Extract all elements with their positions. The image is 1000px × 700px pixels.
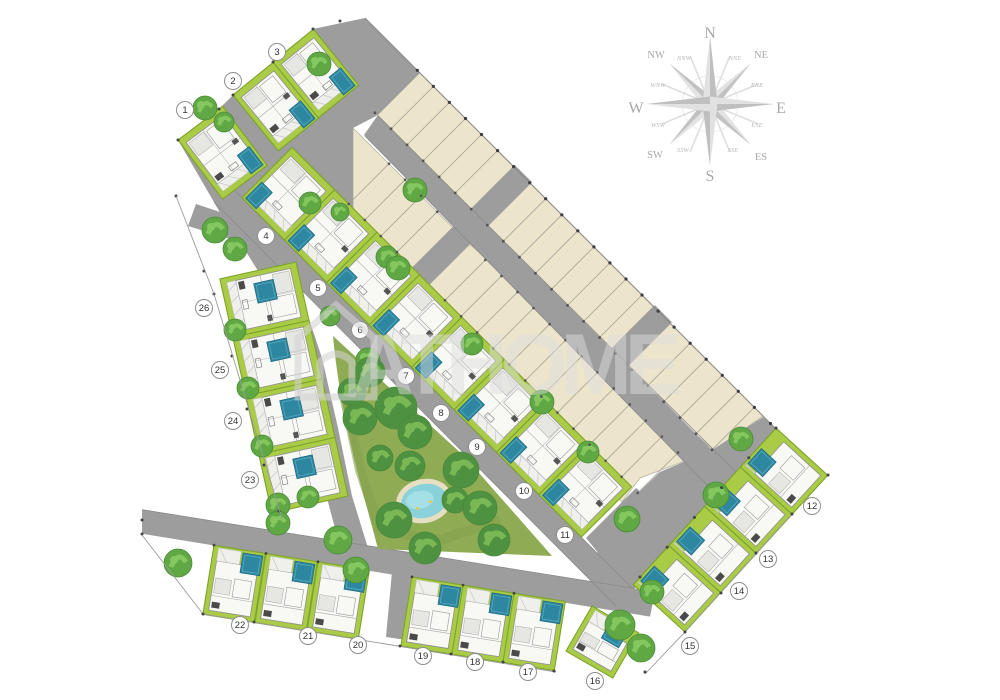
svg-text:S: S — [706, 168, 715, 185]
svg-text:14: 14 — [734, 586, 745, 597]
svg-text:N: N — [704, 25, 716, 42]
svg-text:23: 23 — [245, 475, 256, 486]
svg-text:SW: SW — [647, 150, 663, 161]
svg-text:9: 9 — [474, 442, 479, 453]
svg-text:10: 10 — [519, 486, 530, 497]
svg-text:15: 15 — [685, 641, 696, 652]
svg-text:11: 11 — [560, 530, 570, 541]
svg-text:17: 17 — [523, 667, 534, 678]
svg-text:ESE: ESE — [750, 122, 762, 129]
svg-text:WSW: WSW — [651, 122, 666, 129]
svg-text:12: 12 — [807, 501, 818, 512]
svg-text:SSW: SSW — [677, 147, 690, 154]
svg-text:26: 26 — [199, 303, 210, 314]
svg-text:1: 1 — [182, 105, 187, 116]
svg-text:ENE: ENE — [750, 82, 763, 89]
svg-text:SSE: SSE — [728, 147, 739, 154]
svg-text:20: 20 — [353, 640, 364, 651]
svg-text:3: 3 — [274, 47, 279, 58]
svg-text:WNW: WNW — [650, 82, 666, 89]
svg-text:NNW: NNW — [676, 55, 692, 62]
svg-text:W: W — [628, 100, 644, 117]
svg-text:NW: NW — [647, 50, 665, 61]
svg-text:21: 21 — [303, 631, 314, 642]
svg-text:22: 22 — [235, 620, 246, 631]
svg-text:25: 25 — [215, 365, 226, 376]
svg-text:ES: ES — [755, 152, 767, 163]
svg-text:2: 2 — [230, 76, 235, 87]
svg-text:NNE: NNE — [728, 55, 742, 62]
svg-text:18: 18 — [470, 657, 481, 668]
svg-text:24: 24 — [228, 416, 239, 427]
svg-text:ATHOME: ATHOME — [352, 317, 688, 413]
svg-text:16: 16 — [590, 676, 601, 687]
svg-text:E: E — [776, 100, 786, 117]
svg-text:NE: NE — [754, 50, 768, 61]
svg-text:5: 5 — [315, 283, 320, 294]
svg-text:4: 4 — [263, 231, 268, 242]
svg-text:19: 19 — [418, 651, 429, 662]
svg-text:13: 13 — [763, 554, 774, 565]
